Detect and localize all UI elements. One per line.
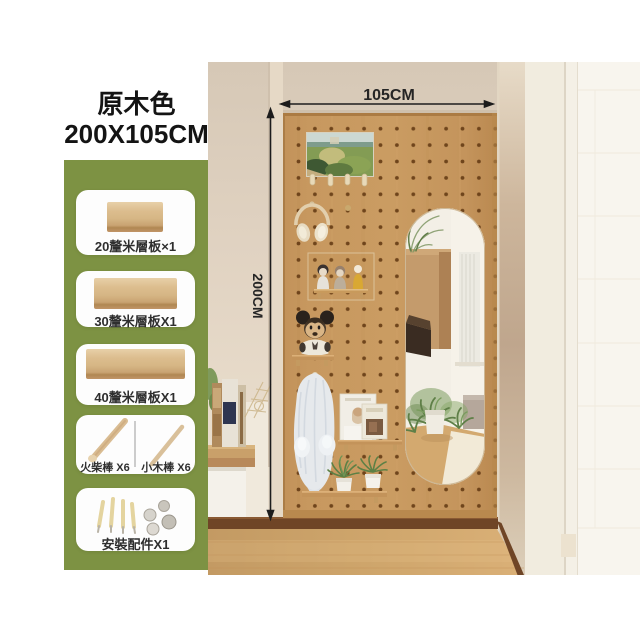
svg-text:105CM: 105CM [363, 87, 415, 104]
svg-text:200CM: 200CM [250, 273, 266, 318]
